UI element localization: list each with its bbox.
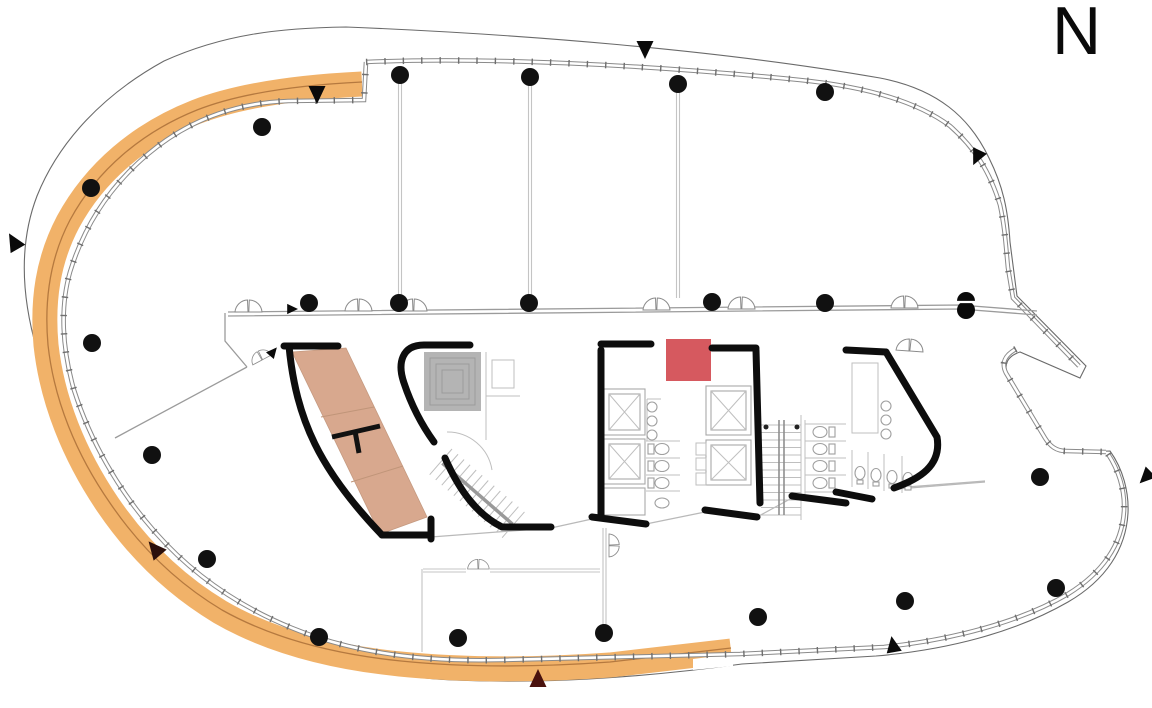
column-dot xyxy=(83,334,101,352)
column-dot xyxy=(391,66,409,84)
structural-columns xyxy=(82,66,1065,647)
column-dot xyxy=(1047,579,1065,597)
column-dot xyxy=(896,592,914,610)
shaft-room xyxy=(424,352,481,411)
column-dot xyxy=(816,294,834,312)
column-dot xyxy=(390,294,408,312)
column-dot xyxy=(595,624,613,642)
column-dot xyxy=(198,550,216,568)
section-half-disc xyxy=(957,292,975,301)
promenade-band xyxy=(45,82,733,670)
elevator-bank xyxy=(604,386,751,515)
triangle-marker-icon xyxy=(287,304,298,314)
elevator-shaft xyxy=(604,389,645,435)
column-dot xyxy=(82,179,100,197)
column-dot xyxy=(300,294,318,312)
section-marker xyxy=(956,292,976,319)
column-dot xyxy=(449,629,467,647)
floor-plan: N xyxy=(0,0,1152,708)
column-dot xyxy=(520,294,538,312)
column-dot xyxy=(1031,468,1049,486)
elevator-shaft xyxy=(706,386,751,435)
section-dot xyxy=(957,301,975,319)
column-dot xyxy=(669,75,687,93)
column-dot xyxy=(310,628,328,646)
column-dot xyxy=(143,446,161,464)
column-dot xyxy=(521,68,539,86)
elevator-shaft xyxy=(604,439,645,484)
triangle-marker-icon xyxy=(637,41,654,59)
column-dot xyxy=(749,608,767,626)
partition-walls xyxy=(115,78,985,652)
elevator-shaft xyxy=(604,488,645,515)
triangle-marker-icon xyxy=(1134,466,1152,488)
floor-plan-svg xyxy=(0,0,1152,708)
column-dot xyxy=(703,293,721,311)
triangle-marker-icon xyxy=(2,229,26,253)
highlighted-room xyxy=(666,339,711,381)
column-dot xyxy=(816,83,834,101)
service-core xyxy=(235,296,985,569)
toilet-area-mid xyxy=(646,399,680,508)
toilet-area-east xyxy=(805,420,846,500)
north-indicator: N xyxy=(1052,0,1101,67)
glazed-facade xyxy=(64,60,1125,660)
column-dot xyxy=(253,118,271,136)
elevator-shaft xyxy=(706,440,751,485)
